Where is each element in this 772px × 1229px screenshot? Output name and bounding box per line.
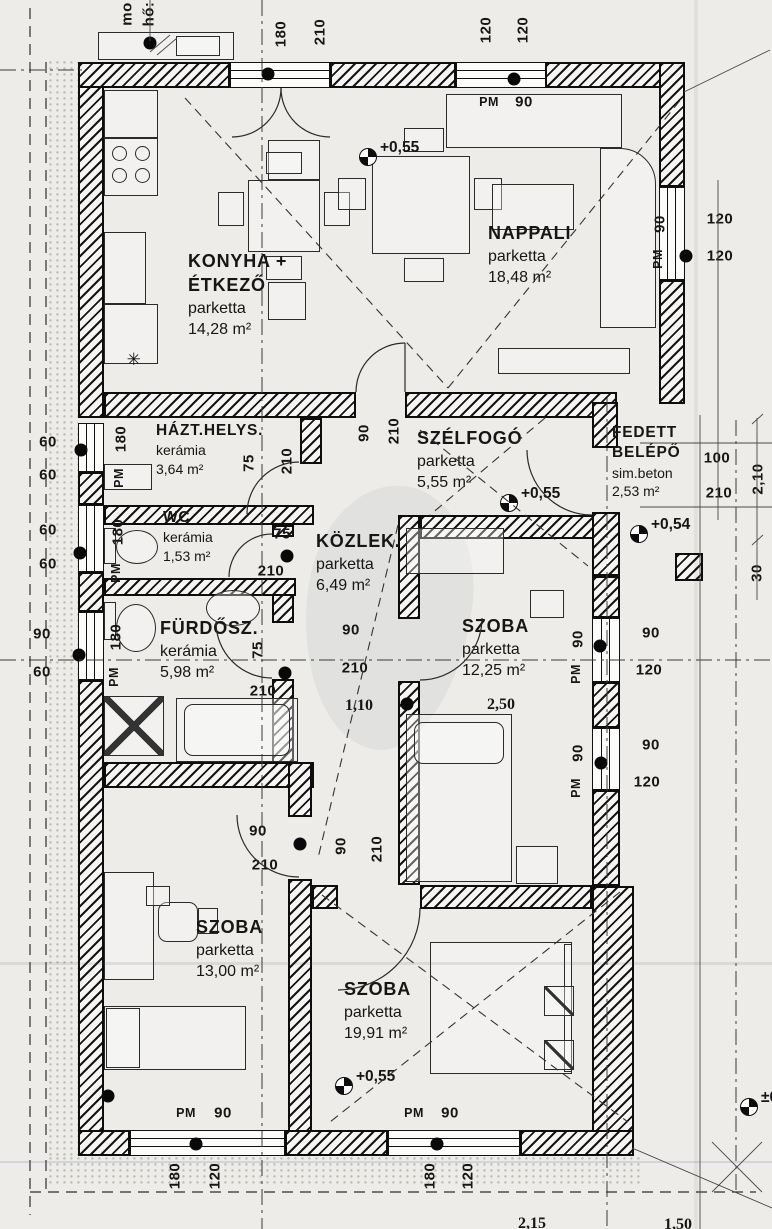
level-value: +0,55 [356,1068,395,1086]
dimension-label: mo [119,2,136,26]
wall-segment [659,62,685,187]
dimension-label: 210 [706,485,733,502]
dimension-label: 90 [33,626,51,643]
level-value: +0,55 [380,139,419,157]
dimension-label: 1,10 [345,697,373,715]
room-nm-text: SZOBA [196,916,263,940]
side-table-symbol [530,590,564,618]
dimension-label: PM [569,664,583,684]
wall-segment [592,790,620,886]
dimension-label: PM [112,468,126,488]
window [78,612,104,680]
chair-symbol [218,192,244,226]
junction-dot [262,68,275,81]
tv-bench-symbol [498,348,630,374]
kitchen-stove-symbol [104,138,158,196]
pillow-symbol [106,1008,140,1068]
door-arc-main-entry [527,450,592,515]
dining-table-symbol [372,156,470,254]
wall-segment [592,576,620,618]
room-nm-text: FEDETT [612,423,681,443]
table-symbol [158,902,198,942]
dimension-label: 120 [515,17,532,44]
stove-burner-symbol [135,168,150,183]
wall-segment [420,885,592,909]
fold-cross-1 [712,1142,762,1192]
level-value: +0,54 [651,516,690,534]
dimension-label: 90 [570,744,587,762]
kitchen-table-symbol [248,180,320,252]
wall-segment [659,280,685,404]
wall-segment [285,1130,388,1156]
dimension-label: 1,50 [664,1216,692,1229]
window-box-inner-symbol [176,36,220,56]
stipple-bottom [48,1156,640,1184]
room-nm-text: NAPPALI [488,222,571,246]
room-ar-text: 19,91 m² [344,1023,411,1044]
room-ar-text: 1,53 m² [163,547,213,565]
sofa-symbol [446,94,622,148]
wall-segment [104,392,356,418]
dimension-label: 180 [167,1163,184,1190]
dimension-label: PM [569,778,583,798]
dimension-label: 210 [342,660,369,677]
room-label: SZOBAparketta19,91 m² [344,978,411,1044]
dimension-label: 90 [356,424,373,442]
room-fl-text: kerámia [163,528,213,546]
dimension-label: 210 [386,418,403,445]
junction-dot [508,73,521,86]
washing-machine-symbol [104,696,164,756]
room-label: FEDETTBELÉPŐsim.beton2,53 m² [612,423,681,501]
junction-dot [294,838,307,851]
dimension-label: 60 [33,664,51,681]
nightstand-symbol [516,846,558,884]
junction-dot [102,1090,115,1103]
dimension-label: 2,50 [487,696,515,714]
level-symbol-icon [359,148,377,166]
dimension-label: 75 [250,641,267,659]
room-fl-text: kerámia [160,641,258,662]
sofa-corner-symbol [600,148,656,328]
room-nm-text: KONYHA + [188,250,287,274]
wall-segment [104,578,296,596]
dimension-label: 90 [570,630,587,648]
nightstand-symbol [544,1040,574,1070]
wall-segment [78,572,104,612]
wall-segment [675,553,703,581]
wall-segment [405,392,617,418]
junction-dot [279,667,292,680]
dimension-label: 120 [207,1163,224,1190]
fold-line-vertical [694,0,698,1229]
junction-dot [401,698,414,711]
wall-segment [592,682,620,728]
junction-dot [73,649,86,662]
door-arc-entry-double-left [232,88,281,137]
room-nm-text: SZÉLFOGÓ [417,427,522,451]
room-ar-text: 12,25 m² [462,660,529,681]
wall-segment [288,879,312,1132]
dimension-label: hő: [141,2,158,27]
wardrobe-symbol [406,528,504,574]
window [456,62,546,88]
room-nm-text: KÖZLEK. [316,530,401,554]
dimension-label: 120 [707,211,734,228]
junction-dot [594,640,607,653]
room-label: NAPPALIparketta18,48 m² [488,222,571,288]
door-arc-konyha-szelfogo [356,343,405,392]
window [388,1130,520,1156]
dimension-label: 90 [642,737,660,754]
stove-burner-symbol [112,168,127,183]
room-fl-text: parketta [462,639,529,660]
dimension-label: 180 [273,21,290,48]
room-ar-text: 14,28 m² [188,319,287,340]
room-label: FÜRDŐSZ.kerámia5,98 m² [160,617,258,683]
room-nm-text: HÁZT.HELYS. [156,421,263,441]
dimension-label: PM [479,95,499,109]
wall-segment [520,1130,634,1156]
dimension-label: 210 [252,857,279,874]
dim-tick-1 [752,414,763,424]
chair-symbol [266,152,302,174]
wall-segment [592,512,620,576]
room-fl-text: parketta [488,246,571,267]
stipple-left [48,60,78,1158]
room-fl-text: parketta [344,1002,411,1023]
corner-diagonal-topright [684,50,770,92]
junction-dot [75,444,88,457]
level-symbol-icon [740,1098,758,1116]
junction-dot [680,250,693,263]
chair-symbol [146,886,170,906]
room-label: KONYHA +ÉTKEZŐparketta14,28 m² [188,250,287,340]
dimension-label: ✳ [127,350,142,370]
room-ar-text: 18,48 m² [488,267,571,288]
stove-burner-symbol [112,146,127,161]
pillow-symbol [414,722,504,764]
room-fl-text: parketta [196,940,263,961]
window [130,1130,285,1156]
room-nm-text: BELÉPŐ [612,443,681,463]
wall-segment [78,62,230,88]
room-ar-text: 5,98 m² [160,662,258,683]
dimension-label: 100 [704,450,731,467]
dimension-label: 210 [258,563,285,580]
junction-dot [431,1138,444,1151]
bathtub-inner-symbol [184,704,290,756]
room-ar-text: 13,00 m² [196,961,263,982]
dimension-label: 2,10 [750,463,767,494]
level-value: +0,55 [521,485,560,503]
level-value: ±0,00 [761,1089,772,1107]
level-symbol-icon [500,494,518,512]
dimension-label: 210 [279,448,296,475]
window [78,505,104,572]
dimension-label: PM [176,1106,196,1120]
dimension-label: 120 [460,1163,477,1190]
wall-segment [300,418,322,464]
room-nm-text: FÜRDŐSZ. [160,617,258,641]
dimension-label: 180 [110,519,127,546]
dimension-label: 120 [636,662,663,679]
dimension-label: PM [107,667,121,687]
wall-segment [78,1130,130,1156]
room-nm-text: ÉTKEZŐ [188,274,287,298]
chair-symbol [404,258,444,282]
floor-plan: KONYHA +ÉTKEZŐparketta14,28 m²NAPPALIpar… [0,0,772,1229]
stove-burner-symbol [135,146,150,161]
corner-diagonal-bottomright [632,1148,772,1208]
dimension-label: 210 [312,19,329,46]
dimension-label: 60 [39,467,57,484]
door-arc-entry-double-right [281,88,330,137]
room-label: SZOBAparketta13,00 m² [196,916,263,982]
level-symbol-icon [630,525,648,543]
dimension-label: 90 [441,1105,459,1122]
dimension-label: 60 [39,522,57,539]
wall-segment [78,680,104,1132]
dimension-label: 75 [273,526,291,543]
room-ar-text: 6,49 m² [316,575,401,596]
dimension-label: 2,15 [518,1215,546,1229]
dimension-label: 120 [634,774,661,791]
room-fl-text: parketta [316,554,401,575]
dimension-label: PM [109,563,123,583]
chair-symbol [338,178,366,210]
dimension-label: PM [404,1106,424,1120]
junction-dot [595,757,608,770]
wall-segment [104,762,314,788]
wall-segment [592,886,634,1132]
dimension-label: 75 [241,454,258,472]
dimension-label: 90 [333,837,350,855]
dimension-label: 30 [749,564,766,582]
dimension-label: 90 [214,1105,232,1122]
room-fl-text: parketta [417,451,522,472]
room-ar-text: 2,53 m² [612,482,681,500]
dim-tick-2 [752,535,763,545]
dimension-label: 120 [707,248,734,265]
junction-dot [144,37,157,50]
wall-segment [312,885,338,909]
room-label: SZOBAparketta12,25 m² [462,615,529,681]
window [230,62,330,88]
room-label: WCkerámia1,53 m² [163,508,213,565]
room-nm-text: SZOBA [344,978,411,1002]
room-ar-text: 5,55 m² [417,472,522,493]
wall-segment [78,62,104,418]
dimension-label: 90 [642,625,660,642]
dimension-label: 180 [108,624,125,651]
wall-segment [78,472,104,505]
room-fl-text: sim.beton [612,464,681,482]
dimension-label: 90 [515,94,533,111]
junction-dot [190,1138,203,1151]
dimension-label: 60 [39,556,57,573]
fold-cross-2 [712,1142,762,1192]
dimension-label: 120 [478,17,495,44]
dimension-label: 210 [250,683,277,700]
room-nm-text: SZOBA [462,615,529,639]
kitchen-cabinet-symbol [104,90,158,138]
junction-dot [281,550,294,563]
room-label: KÖZLEK.parketta6,49 m² [316,530,401,596]
wall-segment [288,762,312,817]
wall-segment [330,62,456,88]
kitchen-radiator-symbol [104,232,146,304]
junction-dot [74,547,87,560]
dimension-label: 90 [249,823,267,840]
room-label: SZÉLFOGÓparketta5,55 m² [417,427,522,493]
room-nm-text: WC [163,508,213,528]
dimension-label: 180 [113,426,130,453]
dimension-label: 90 [342,622,360,639]
dimension-label: 60 [39,434,57,451]
dimension-label: PM [651,249,665,269]
room-fl-text: parketta [188,298,287,319]
level-symbol-icon [335,1077,353,1095]
dimension-label: 90 [652,215,669,233]
nightstand-symbol [544,986,574,1016]
dimension-label: 210 [369,836,386,863]
dimension-label: 180 [422,1163,439,1190]
